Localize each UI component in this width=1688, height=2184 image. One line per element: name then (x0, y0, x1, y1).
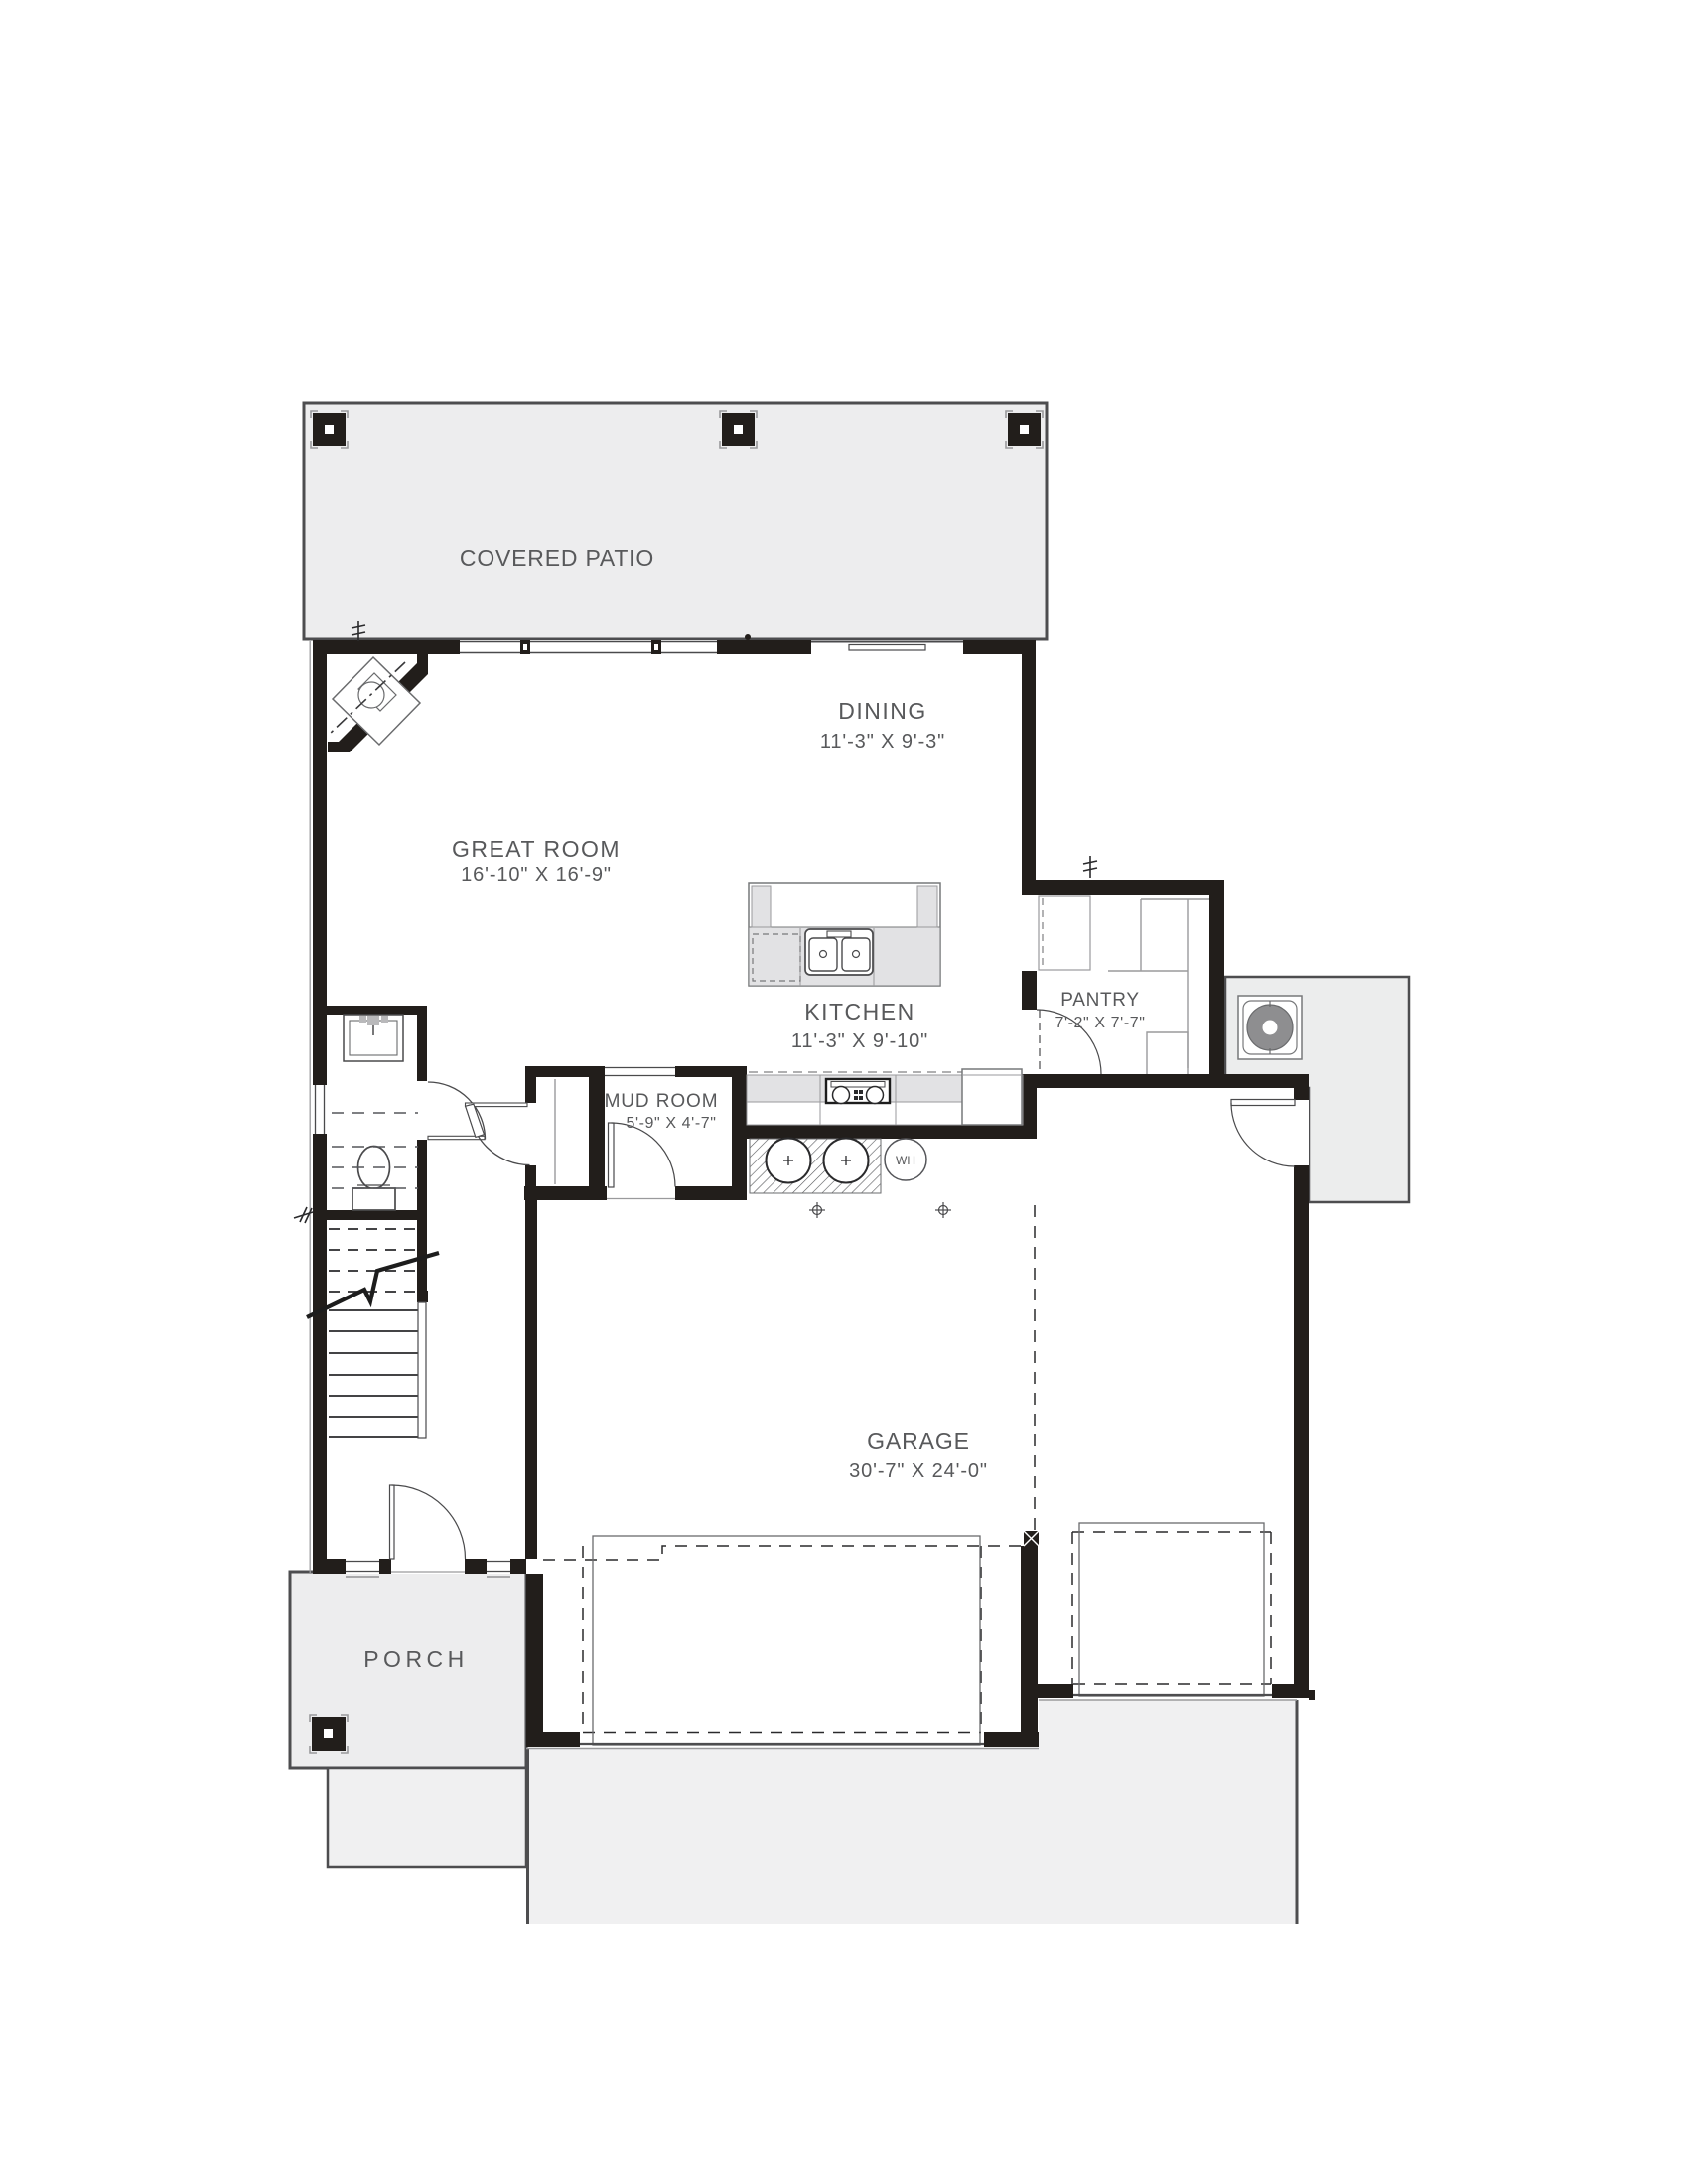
svg-text:PORCH: PORCH (363, 1646, 469, 1672)
svg-text:5'-9" X 4'-7": 5'-9" X 4'-7" (626, 1115, 716, 1132)
svg-text:COVERED PATIO: COVERED PATIO (460, 545, 654, 571)
svg-text:WH: WH (896, 1154, 915, 1167)
svg-text:KITCHEN: KITCHEN (804, 999, 914, 1024)
svg-text:7'-2" X 7'-7": 7'-2" X 7'-7" (1055, 1015, 1145, 1031)
svg-text:11'-3" X 9'-3": 11'-3" X 9'-3" (820, 731, 945, 752)
svg-text:PANTRY: PANTRY (1060, 990, 1140, 1011)
svg-text:16'-10" X 16'-9": 16'-10" X 16'-9" (461, 864, 612, 886)
svg-text:GREAT ROOM: GREAT ROOM (452, 836, 621, 862)
svg-text:DINING: DINING (838, 698, 927, 724)
svg-text:11'-3" X 9'-10": 11'-3" X 9'-10" (791, 1030, 928, 1052)
svg-text:MUD ROOM: MUD ROOM (605, 1091, 719, 1112)
svg-text:30'-7" X 24'-0": 30'-7" X 24'-0" (849, 1460, 988, 1482)
svg-text:GARAGE: GARAGE (867, 1429, 970, 1454)
